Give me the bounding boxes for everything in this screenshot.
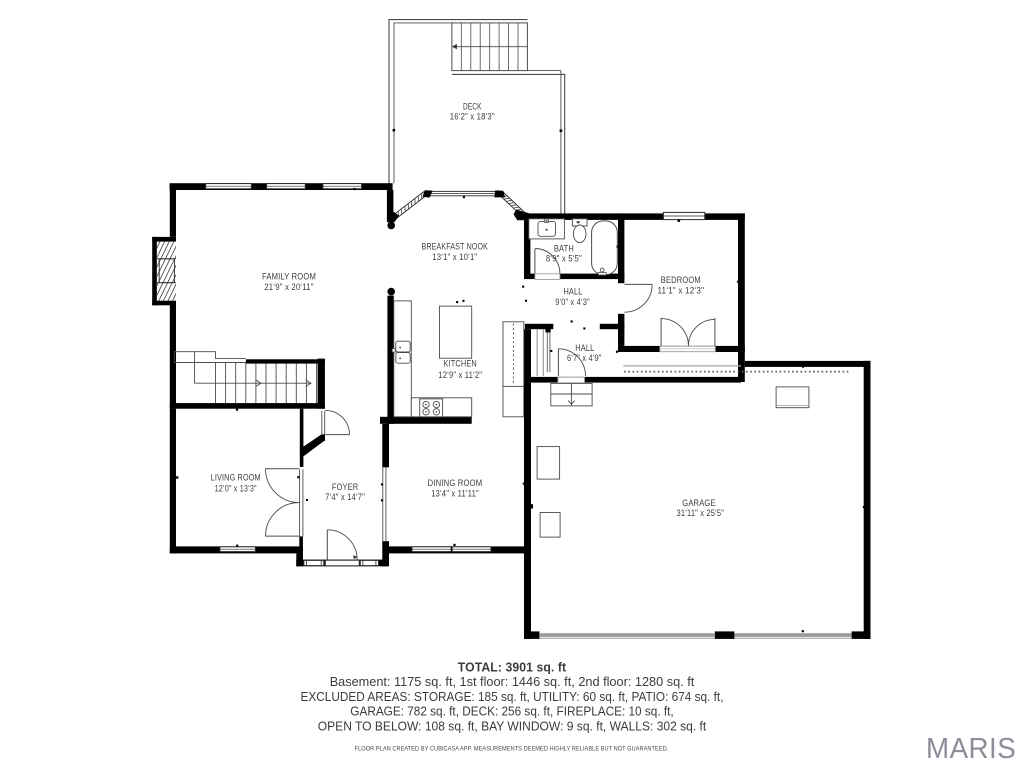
- svg-text:HALL: HALL: [563, 287, 582, 297]
- svg-text:BREAKFAST NOOK: BREAKFAST NOOK: [422, 242, 489, 252]
- svg-text:7‘4" x 14‘7": 7‘4" x 14‘7": [325, 492, 365, 502]
- svg-text:9‘0" x 4‘3": 9‘0" x 4‘3": [555, 297, 590, 307]
- svg-text:LIVING ROOM: LIVING ROOM: [211, 473, 261, 483]
- svg-text:DECK: DECK: [463, 101, 482, 111]
- svg-text:GARAGE: 782 sq. ft, DECK: 256: GARAGE: 782 sq. ft, DECK: 256 sq. ft, FI…: [350, 704, 673, 719]
- svg-text:Basement: 1175 sq. ft, 1st flo: Basement: 1175 sq. ft, 1st floor: 1446 s…: [330, 674, 695, 689]
- svg-text:12‘9" x 11‘2": 12‘9" x 11‘2": [438, 370, 482, 380]
- svg-text:MARIS: MARIS: [926, 733, 1016, 765]
- svg-text:BEDROOM: BEDROOM: [661, 275, 701, 285]
- svg-text:DINING ROOM: DINING ROOM: [428, 478, 483, 488]
- svg-text:TOTAL: 3901 sq. ft: TOTAL: 3901 sq. ft: [458, 659, 567, 674]
- svg-text:EXCLUDED AREAS: STORAGE: 185 s: EXCLUDED AREAS: STORAGE: 185 sq. ft, UTI…: [301, 689, 724, 704]
- svg-text:11‘1" x 12‘3": 11‘1" x 12‘3": [657, 285, 704, 295]
- svg-text:OPEN TO BELOW: 108 sq. ft, BAY: OPEN TO BELOW: 108 sq. ft, BAY WINDOW: 9…: [318, 718, 707, 733]
- svg-text:16‘2" x 18‘3": 16‘2" x 18‘3": [450, 112, 495, 122]
- svg-text:21‘9" x 20‘11": 21‘9" x 20‘11": [264, 282, 313, 292]
- svg-text:31‘11" x 25‘5": 31‘11" x 25‘5": [677, 508, 725, 518]
- svg-text:BATH: BATH: [554, 244, 574, 254]
- svg-text:13‘4" x 11‘11": 13‘4" x 11‘11": [431, 488, 479, 498]
- svg-text:HALL: HALL: [575, 343, 594, 353]
- svg-text:6‘7" x 4‘9": 6‘7" x 4‘9": [567, 353, 602, 363]
- svg-text:13‘1" x 10‘1": 13‘1" x 10‘1": [432, 252, 477, 262]
- svg-text:FAMILY ROOM: FAMILY ROOM: [262, 271, 316, 281]
- svg-text:FOYER: FOYER: [332, 482, 359, 492]
- svg-text:KITCHEN: KITCHEN: [444, 359, 477, 369]
- svg-text:FLOOR PLAN CREATED BY CUBICASA: FLOOR PLAN CREATED BY CUBICASA APP. MEAS…: [355, 745, 669, 752]
- svg-text:8‘9" x 5‘5": 8‘9" x 5‘5": [546, 254, 582, 264]
- svg-text:12‘0" x 13‘3": 12‘0" x 13‘3": [215, 483, 257, 493]
- svg-text:GARAGE: GARAGE: [682, 498, 716, 508]
